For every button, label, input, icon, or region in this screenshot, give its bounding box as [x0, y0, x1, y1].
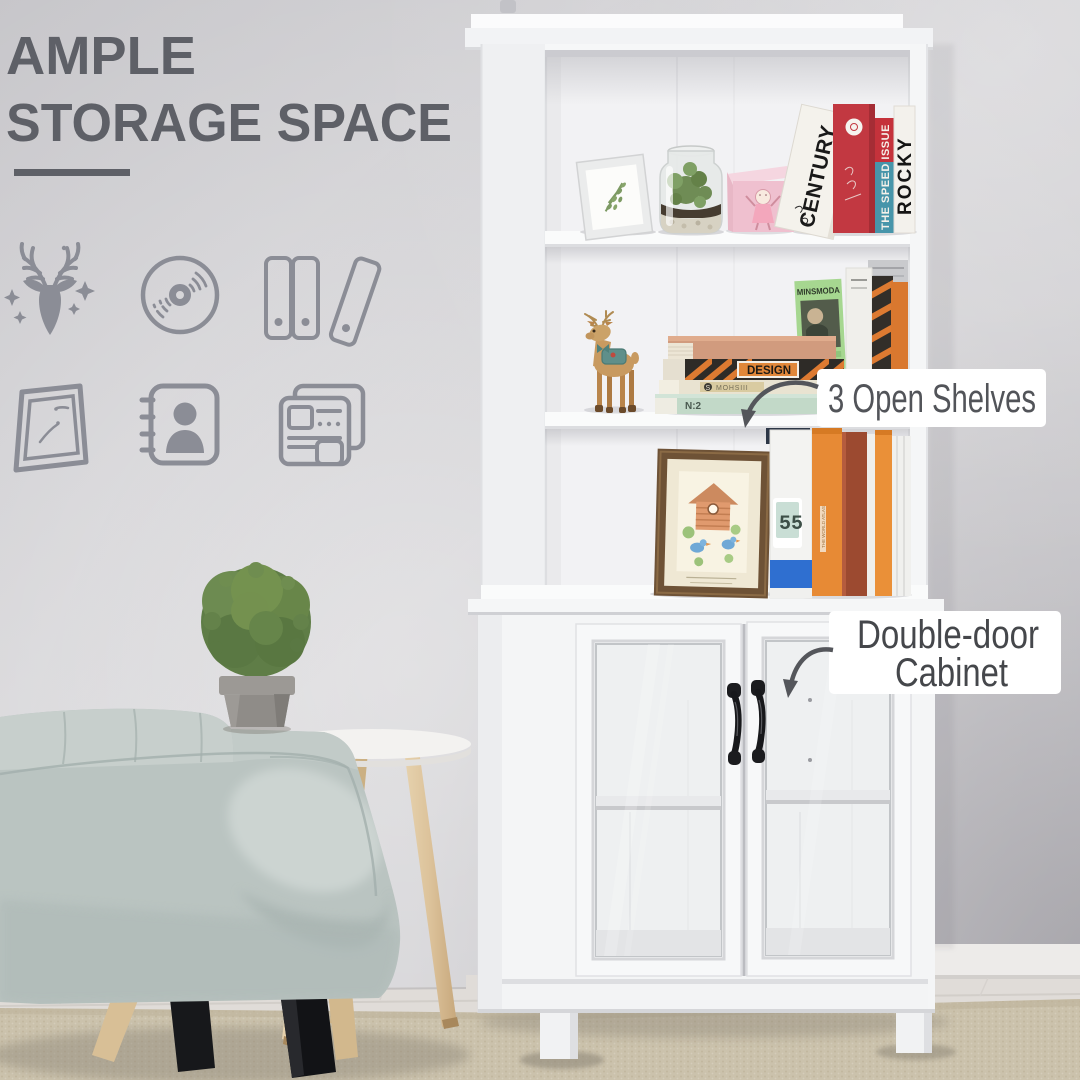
svg-text:S: S [706, 385, 711, 392]
svg-text:THE SPEED ISSUE: THE SPEED ISSUE [880, 124, 892, 230]
svg-text:55: 55 [779, 513, 803, 536]
svg-text:Cabinet: Cabinet [895, 651, 1008, 695]
svg-text:ROCKY: ROCKY [895, 136, 916, 215]
svg-text:N:2: N:2 [685, 401, 702, 412]
svg-text:STORAGE SPACE: STORAGE SPACE [6, 93, 452, 153]
svg-text:AMPLE: AMPLE [6, 26, 196, 86]
svg-text:3 Open Shelves: 3 Open Shelves [828, 377, 1036, 421]
svg-text:DESIGN: DESIGN [747, 365, 791, 377]
svg-text:THE WORLD ATLAS: THE WORLD ATLAS [821, 506, 826, 548]
svg-text:MOHSIII: MOHSIII [716, 385, 748, 392]
